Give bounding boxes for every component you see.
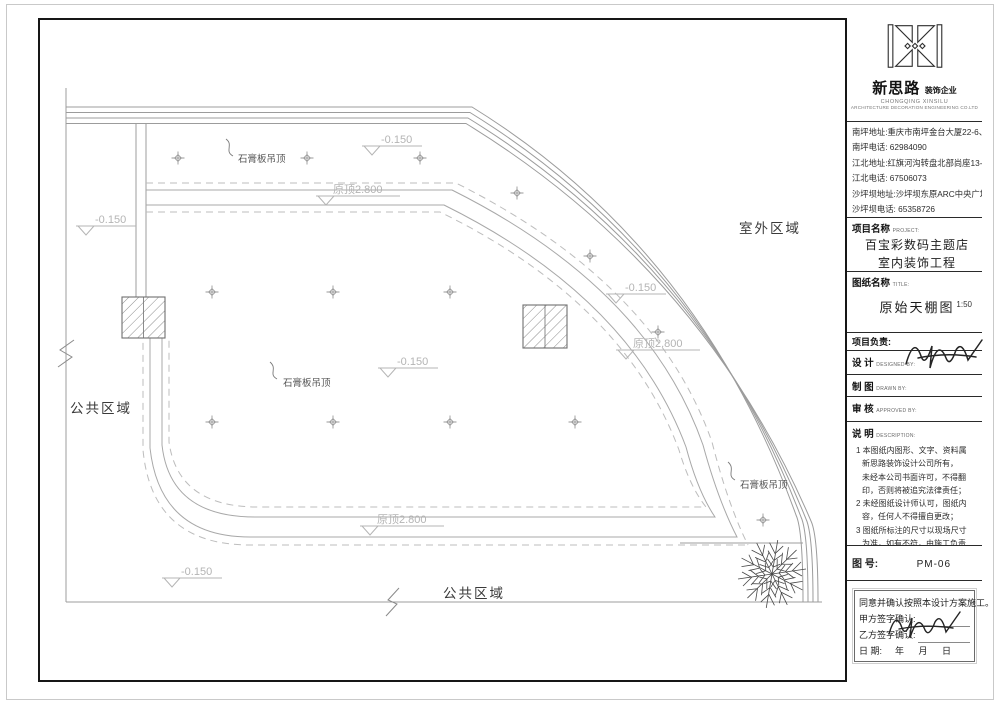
project-lead-label: 项目负责:	[852, 335, 982, 348]
approved-by-label-en: APPROVED BY:	[876, 408, 917, 414]
company-logo-section: 新思路 装饰企业 CHONGQING XINSILU ARCHITECTURE …	[847, 18, 982, 122]
party-a-label: 甲方签字确认:	[859, 611, 916, 627]
sheet-scale: 1:50	[956, 300, 972, 309]
company-name: 新思路 装饰企业	[847, 77, 982, 98]
party-b-signature-line	[918, 629, 970, 643]
sheet-number-label: 图 号:	[852, 555, 878, 570]
project-lead-row: 项目负责:	[847, 333, 982, 351]
sheet-title-label: 图纸名称 TITLE:	[852, 275, 982, 289]
party-b-label: 乙方签字确认:	[859, 627, 916, 643]
contact-line: 南坪电话: 62984090	[852, 140, 982, 155]
approved-by-label-cn: 审 核	[852, 404, 874, 415]
note-line: 3 图纸所标注的尺寸以现场尺寸	[852, 524, 982, 537]
company-name-cn: 新思路	[872, 80, 920, 97]
note-line: 容，任何人不得擅自更改；	[852, 510, 982, 523]
sheet-number-value: PM-06	[917, 559, 951, 570]
date-label: 日 期:	[859, 643, 882, 659]
description-label-cn: 说 明	[852, 429, 874, 440]
party-a-signature-row: 甲方签字确认:	[859, 611, 970, 627]
note-line: 新思路装饰设计公司所有，	[852, 457, 982, 470]
drawn-by-row: 制 图 DRAWN BY:	[847, 375, 982, 397]
contact-line: 沙坪坝电话: 65358726	[852, 202, 982, 217]
note-line: 印，否则将被追究法律责任；	[852, 484, 982, 497]
confirmation-box: 同意并确认按照本设计方案施工。 甲方签字确认: 乙方签字确认: 日 期: 年 月…	[854, 590, 975, 662]
approved-by-row: 审 核 APPROVED BY:	[847, 397, 982, 422]
note-line: 2 未经图纸设计师认可，图纸内	[852, 497, 982, 510]
designed-by-row: 设 计 DESIGNED BY:	[847, 351, 982, 375]
party-a-signature-line	[918, 613, 970, 627]
description-section: 说 明 DESCRIPTION: 1 本图纸内图形、文字、资料属 新思路装饰设计…	[847, 422, 982, 546]
designed-by-label: 设 计 DESIGNED BY:	[852, 355, 982, 369]
project-label-cn: 项目名称	[852, 224, 890, 235]
drawn-by-label-cn: 制 图	[852, 382, 874, 393]
contact-line: 南坪地址:重庆市南坪金台大厦22-6、7、9、10	[852, 125, 982, 140]
title-block: 新思路 装饰企业 CHONGQING XINSILU ARCHITECTURE …	[845, 18, 982, 682]
approved-by-label: 审 核 APPROVED BY:	[852, 401, 982, 415]
note-line: 未经本公司书面许可，不得翻	[852, 471, 982, 484]
note-line: 为准，如有不符，由施工负责	[852, 537, 982, 546]
project-name-line1: 百宝彩数码主题店	[852, 238, 982, 253]
drawn-by-label: 制 图 DRAWN BY:	[852, 379, 982, 393]
description-label-en: DESCRIPTION:	[876, 433, 915, 439]
drawn-by-label-en: DRAWN BY:	[876, 386, 907, 392]
description-label: 说 明 DESCRIPTION:	[852, 426, 982, 440]
company-name-en2: ARCHITECTURE DECORATION ENGINEERING CO.L…	[847, 105, 982, 110]
note-line: 1 本图纸内图形、文字、资料属	[852, 444, 982, 457]
party-b-signature-row: 乙方签字确认:	[859, 627, 970, 643]
designed-by-label-cn: 设 计	[852, 358, 874, 369]
sheet-inner-frame	[38, 18, 982, 682]
confirmation-statement: 同意并确认按照本设计方案施工。	[859, 595, 970, 611]
project-label-en: PROJECT:	[893, 228, 920, 234]
project-name-section: 项目名称 PROJECT: 百宝彩数码主题店 室内装饰工程	[847, 218, 982, 272]
date-value: 年 月 日	[882, 643, 970, 659]
sheet-title-section: 图纸名称 TITLE: 原始天棚图 1:50	[847, 272, 982, 333]
company-logo-icon	[886, 22, 944, 70]
date-row: 日 期: 年 月 日	[859, 643, 970, 659]
drawing-sheet: -0.150 -0.150 -0.150 -0.150 -0.150	[0, 0, 1000, 703]
project-label: 项目名称 PROJECT:	[852, 221, 982, 235]
contact-line: 江北电话: 67506073	[852, 171, 982, 186]
sheet-title-label-en: TITLE:	[893, 282, 910, 288]
sheet-title-label-cn: 图纸名称	[852, 278, 890, 289]
company-name-suffix: 装饰企业	[925, 86, 957, 95]
company-contacts-section: 南坪地址:重庆市南坪金台大厦22-6、7、9、10 南坪电话: 62984090…	[847, 122, 982, 218]
sheet-number-section: 图 号: PM-06	[847, 546, 982, 581]
contact-line: 沙坪坝地址:沙坪坝东原ARC中央广场1-10-3	[852, 187, 982, 202]
contact-line: 江北地址:红旗河沟转盘北部尚座13-7、8、9	[852, 156, 982, 171]
designed-by-label-en: DESIGNED BY:	[876, 362, 915, 368]
project-name-line2: 室内装饰工程	[852, 256, 982, 271]
